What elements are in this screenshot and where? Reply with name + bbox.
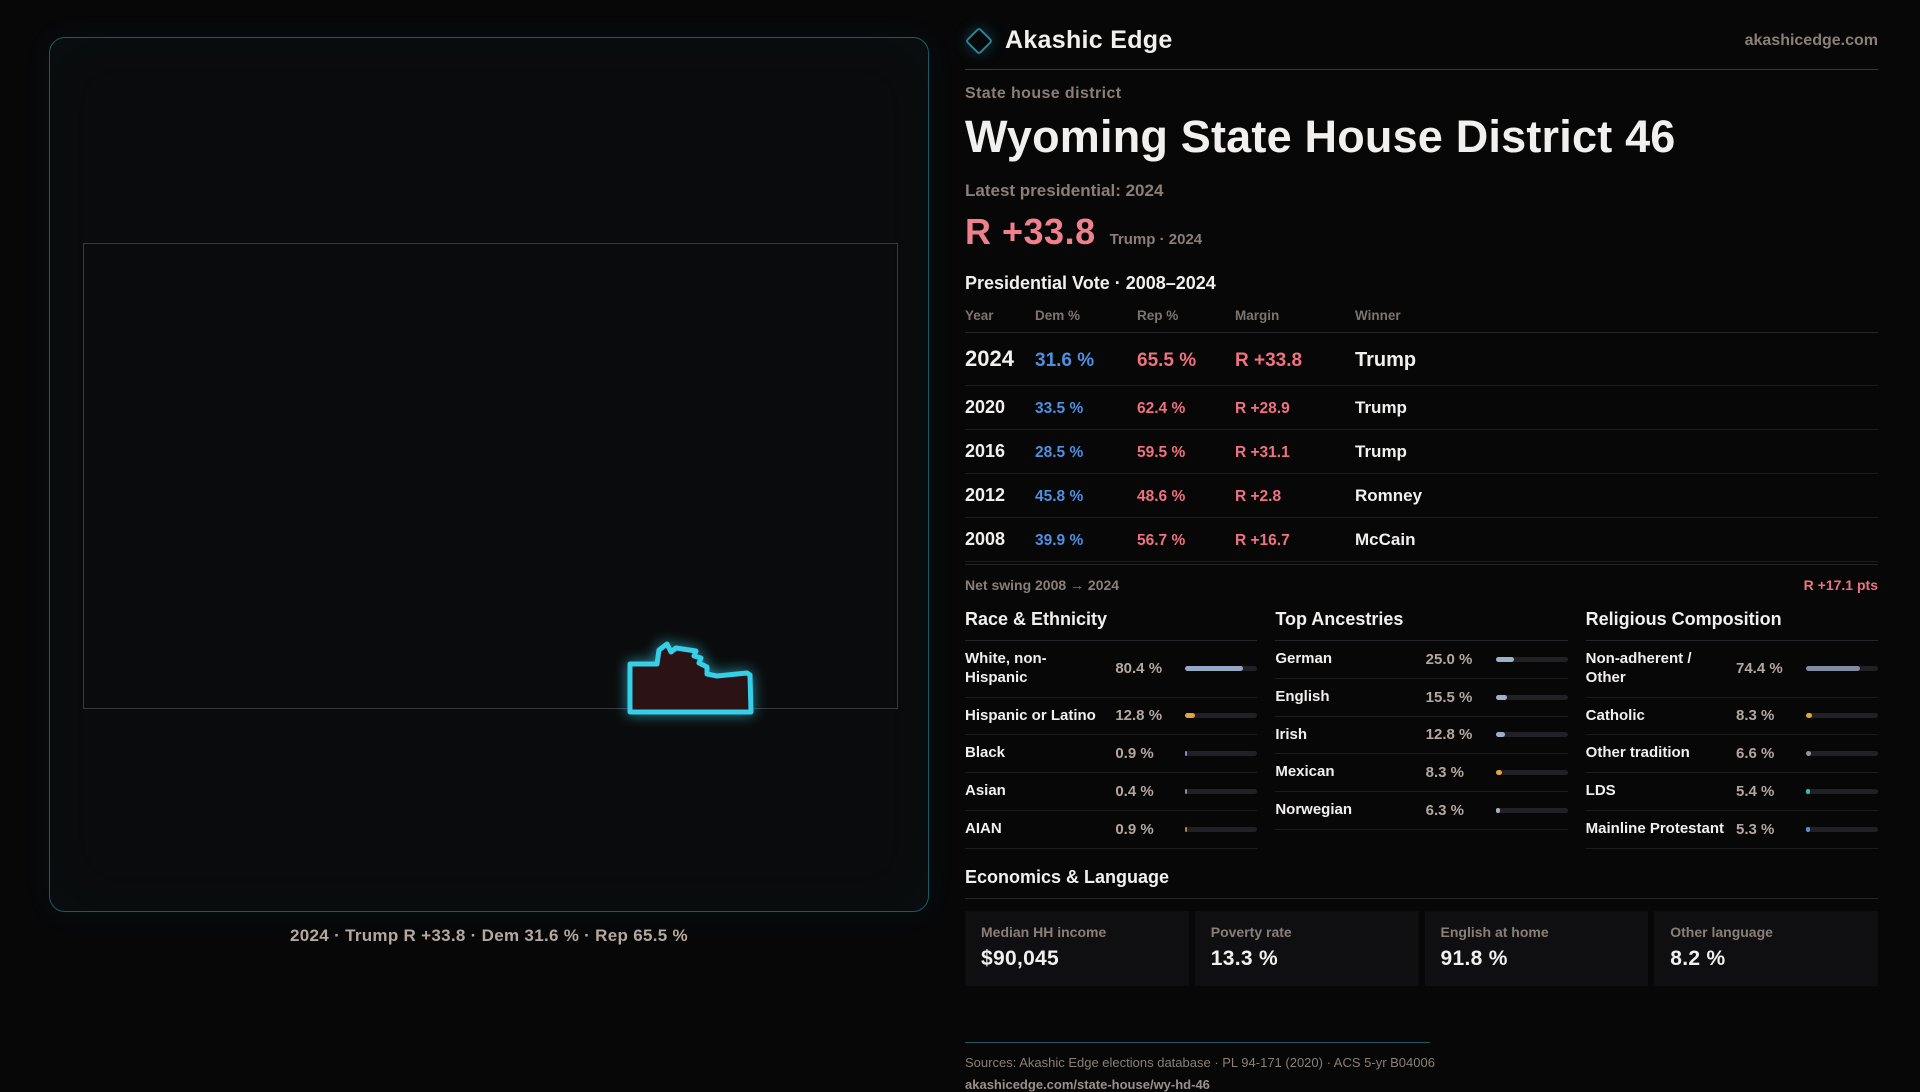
- latest-presidential-label: Latest presidential: 2024: [965, 181, 1878, 201]
- demographics-rows: German 25.0 % English 15.5 % Irish 12.8 …: [1275, 641, 1567, 830]
- district-map-panel: [49, 37, 929, 912]
- demographics-section: Top Ancestries German 25.0 % English 15.…: [1275, 609, 1567, 849]
- vote-table-row: 2008 39.9 % 56.7 % R +16.7 McCain: [965, 518, 1878, 562]
- demographic-bar-fill: [1496, 732, 1505, 737]
- demographic-bar-fill: [1496, 770, 1502, 775]
- demographic-value: 74.4 %: [1736, 660, 1798, 677]
- demographic-bar-fill: [1185, 751, 1187, 756]
- demographic-value: 80.4 %: [1115, 660, 1177, 677]
- vote-winner: Trump: [1355, 398, 1878, 418]
- demographic-label: Norwegian: [1275, 801, 1417, 820]
- demographic-value: 6.3 %: [1426, 802, 1488, 819]
- demographic-bar-fill: [1185, 827, 1187, 832]
- vote-rep-pct: 48.6 %: [1137, 488, 1235, 506]
- district-polygon[interactable]: [630, 644, 751, 712]
- vote-dem-pct: 45.8 %: [1035, 488, 1137, 506]
- vote-year: 2020: [965, 397, 1035, 418]
- demographic-label: LDS: [1586, 782, 1728, 801]
- district-report: Akashic Edge akashicedge.com State house…: [965, 26, 1878, 1092]
- demographic-bar-track: [1496, 808, 1568, 813]
- demographics-section: Race & Ethnicity White, non-Hispanic 80.…: [965, 609, 1257, 849]
- demographic-label: Asian: [965, 782, 1107, 801]
- page-title: Wyoming State House District 46: [965, 111, 1878, 163]
- demographic-label: Mexican: [1275, 763, 1417, 782]
- vote-table-body: 2024 31.6 % 65.5 % R +33.8 Trump 2020 33…: [965, 333, 1878, 562]
- demographic-bar-track: [1496, 695, 1568, 700]
- economics-title: Economics & Language: [965, 867, 1878, 899]
- demographic-value: 8.3 %: [1426, 764, 1488, 781]
- demographics-rows: White, non-Hispanic 80.4 % Hispanic or L…: [965, 641, 1257, 849]
- district-shape[interactable]: [628, 637, 758, 717]
- stat-label: Median HH income: [981, 924, 1173, 940]
- header: Akashic Edge akashicedge.com: [965, 26, 1878, 70]
- demographic-label: Non-adherent / Other: [1586, 650, 1728, 688]
- vote-dem-pct: 33.5 %: [1035, 400, 1137, 418]
- demographic-value: 8.3 %: [1736, 707, 1798, 724]
- vote-table-row: 2024 31.6 % 65.5 % R +33.8 Trump: [965, 333, 1878, 386]
- demographic-bar-fill: [1185, 666, 1243, 671]
- vote-winner: Trump: [1355, 349, 1878, 372]
- vote-dem-pct: 39.9 %: [1035, 532, 1137, 550]
- demographic-value: 0.4 %: [1115, 783, 1177, 800]
- col-year: Year: [965, 308, 1035, 323]
- demographic-row: Mainline Protestant 5.3 %: [1586, 811, 1878, 849]
- demographic-bar-track: [1806, 751, 1878, 756]
- demographic-row: White, non-Hispanic 80.4 %: [965, 641, 1257, 698]
- vote-winner: Romney: [1355, 486, 1878, 506]
- demographic-label: Catholic: [1586, 707, 1728, 726]
- stat-label: Other language: [1670, 924, 1862, 940]
- col-winner: Winner: [1355, 308, 1878, 323]
- demographic-bar-fill: [1496, 657, 1514, 662]
- vote-winner: Trump: [1355, 442, 1878, 462]
- demographic-value: 0.9 %: [1115, 745, 1177, 762]
- stat-value: $90,045: [981, 947, 1173, 971]
- demographic-bar-track: [1496, 657, 1568, 662]
- demographic-row: Non-adherent / Other 74.4 %: [1586, 641, 1878, 698]
- vote-margin: R +33.8: [1235, 350, 1355, 372]
- net-swing-value: R +17.1 pts: [1804, 577, 1878, 593]
- demographic-label: AIAN: [965, 820, 1107, 839]
- demographic-bar-fill: [1185, 713, 1194, 718]
- col-dem: Dem %: [1035, 308, 1137, 323]
- vote-margin: R +28.9: [1235, 400, 1355, 418]
- map-caption: 2024 · Trump R +33.8 · Dem 31.6 % · Rep …: [49, 926, 929, 946]
- demographic-row: Catholic 8.3 %: [1586, 698, 1878, 736]
- stat-value: 8.2 %: [1670, 947, 1862, 971]
- vote-year: 2024: [965, 346, 1035, 372]
- site-link[interactable]: akashicedge.com: [1745, 32, 1878, 50]
- demographic-value: 6.6 %: [1736, 745, 1798, 762]
- vote-year: 2012: [965, 485, 1035, 506]
- stat-value: 91.8 %: [1441, 947, 1633, 971]
- vote-rep-pct: 62.4 %: [1137, 400, 1235, 418]
- demographic-row: Hispanic or Latino 12.8 %: [965, 698, 1257, 736]
- demographics-section-title: Top Ancestries: [1275, 609, 1567, 641]
- col-rep: Rep %: [1137, 308, 1235, 323]
- vote-table-row: 2016 28.5 % 59.5 % R +31.1 Trump: [965, 430, 1878, 474]
- vote-rep-pct: 65.5 %: [1137, 350, 1235, 372]
- col-margin: Margin: [1235, 308, 1355, 323]
- vote-dem-pct: 28.5 %: [1035, 444, 1137, 462]
- footer: Sources: Akashic Edge elections database…: [965, 1042, 1878, 1092]
- brand-name: Akashic Edge: [1005, 26, 1173, 55]
- demographic-bar-track: [1806, 827, 1878, 832]
- demographic-value: 15.5 %: [1426, 689, 1488, 706]
- demographic-row: AIAN 0.9 %: [965, 811, 1257, 849]
- demographic-bar-track: [1496, 770, 1568, 775]
- vote-dem-pct: 31.6 %: [1035, 350, 1137, 372]
- demographic-row: Other tradition 6.6 %: [1586, 735, 1878, 773]
- vote-margin: R +2.8: [1235, 488, 1355, 506]
- demographic-label: Mainline Protestant: [1586, 820, 1728, 839]
- demographic-label: Hispanic or Latino: [965, 707, 1107, 726]
- permalink[interactable]: akashicedge.com/state-house/wy-hd-46: [965, 1077, 1878, 1092]
- brand-block: Akashic Edge: [965, 26, 1173, 55]
- demographic-bar-fill: [1806, 751, 1811, 756]
- sources-text: Sources: Akashic Edge elections database…: [965, 1055, 1878, 1070]
- demographic-bar-fill: [1496, 695, 1507, 700]
- demographic-bar-track: [1185, 789, 1257, 794]
- headline-margin-value: R +33.8: [965, 211, 1096, 253]
- demographic-value: 0.9 %: [1115, 821, 1177, 838]
- vote-table-row: 2020 33.5 % 62.4 % R +28.9 Trump: [965, 386, 1878, 430]
- stat-value: 13.3 %: [1211, 947, 1403, 971]
- demographic-row: Black 0.9 %: [965, 735, 1257, 773]
- stat-label: English at home: [1441, 924, 1633, 940]
- demographic-bar-fill: [1496, 808, 1501, 813]
- demographic-label: Irish: [1275, 726, 1417, 745]
- demographic-bar-track: [1806, 713, 1878, 718]
- footer-divider: [965, 1042, 1430, 1043]
- headline-margin-context: Trump · 2024: [1110, 231, 1203, 248]
- demographic-label: English: [1275, 688, 1417, 707]
- demographics-section-title: Religious Composition: [1586, 609, 1878, 641]
- stat-card: Median HH income $90,045: [965, 911, 1189, 986]
- demographic-label: Black: [965, 744, 1107, 763]
- demographic-value: 25.0 %: [1426, 651, 1488, 668]
- demographic-bar-track: [1806, 789, 1878, 794]
- demographics-grid: Race & Ethnicity White, non-Hispanic 80.…: [965, 609, 1878, 849]
- demographic-row: Irish 12.8 %: [1275, 717, 1567, 755]
- demographic-row: Mexican 8.3 %: [1275, 754, 1567, 792]
- demographic-bar-track: [1185, 751, 1257, 756]
- demographic-row: German 25.0 %: [1275, 641, 1567, 679]
- stat-label: Poverty rate: [1211, 924, 1403, 940]
- vote-table-header: Year Dem % Rep % Margin Winner: [965, 308, 1878, 333]
- demographics-section-title: Race & Ethnicity: [965, 609, 1257, 641]
- state-outline: [83, 243, 898, 709]
- vote-year: 2008: [965, 529, 1035, 550]
- demographic-value: 5.3 %: [1736, 821, 1798, 838]
- demographic-bar-fill: [1806, 789, 1810, 794]
- demographic-row: English 15.5 %: [1275, 679, 1567, 717]
- headline-margin-block: R +33.8 Trump · 2024: [965, 211, 1878, 253]
- net-swing-row: Net swing 2008 → 2024 R +17.1 pts: [965, 564, 1878, 593]
- demographic-bar-fill: [1185, 789, 1187, 794]
- demographic-bar-track: [1806, 666, 1878, 671]
- demographic-bar-track: [1185, 827, 1257, 832]
- net-swing-label: Net swing 2008 → 2024: [965, 577, 1119, 593]
- demographic-bar-fill: [1806, 713, 1812, 718]
- demographic-bar-track: [1185, 713, 1257, 718]
- demographic-label: White, non-Hispanic: [965, 650, 1107, 688]
- economics-stats: Median HH income $90,045 Poverty rate 13…: [965, 911, 1878, 986]
- demographic-bar-track: [1185, 666, 1257, 671]
- demographic-row: Norwegian 6.3 %: [1275, 792, 1567, 830]
- demographics-section: Religious Composition Non-adherent / Oth…: [1586, 609, 1878, 849]
- demographic-value: 12.8 %: [1426, 726, 1488, 743]
- vote-year: 2016: [965, 441, 1035, 462]
- demographic-bar-fill: [1806, 666, 1860, 671]
- vote-table-row: 2012 45.8 % 48.6 % R +2.8 Romney: [965, 474, 1878, 518]
- demographic-row: LDS 5.4 %: [1586, 773, 1878, 811]
- vote-table-title: Presidential Vote · 2008–2024: [965, 273, 1878, 294]
- diamond-logo-icon: [965, 26, 993, 54]
- kicker-label: State house district: [965, 85, 1878, 103]
- demographic-label: Other tradition: [1586, 744, 1728, 763]
- demographic-label: German: [1275, 650, 1417, 669]
- demographic-row: Asian 0.4 %: [965, 773, 1257, 811]
- vote-rep-pct: 56.7 %: [1137, 532, 1235, 550]
- vote-margin: R +31.1: [1235, 444, 1355, 462]
- vote-margin: R +16.7: [1235, 532, 1355, 550]
- vote-winner: McCain: [1355, 530, 1878, 550]
- demographics-rows: Non-adherent / Other 74.4 % Catholic 8.3…: [1586, 641, 1878, 849]
- demographic-value: 12.8 %: [1115, 707, 1177, 724]
- demographic-value: 5.4 %: [1736, 783, 1798, 800]
- demographic-bar-track: [1496, 732, 1568, 737]
- stat-card: Poverty rate 13.3 %: [1195, 911, 1419, 986]
- demographic-bar-fill: [1806, 827, 1810, 832]
- stat-card: Other language 8.2 %: [1654, 911, 1878, 986]
- vote-rep-pct: 59.5 %: [1137, 444, 1235, 462]
- stat-card: English at home 91.8 %: [1425, 911, 1649, 986]
